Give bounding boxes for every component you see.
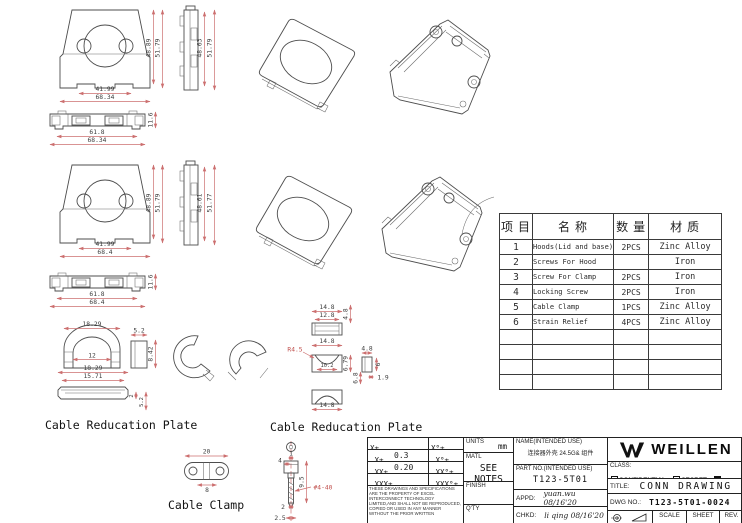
dwg-no-cell: DWG NO.: T123-5T01-0024 xyxy=(608,494,742,511)
weillen-logo-icon xyxy=(618,441,646,459)
dim-text: 51.79 xyxy=(207,38,214,57)
dim-text: 8.42 xyxy=(148,346,155,361)
dim-text: 68.4 xyxy=(97,249,112,256)
qty-label: Q'TY xyxy=(464,505,513,512)
name-label: NAME(INTENDED USE) xyxy=(514,438,607,445)
parts-table: 项 目 名 称 数 量 材 质 1 Hoods(Lid and base) 2P… xyxy=(499,213,722,390)
cell-material: Iron xyxy=(649,285,722,300)
dim-text: 14.8 xyxy=(319,402,334,409)
cell-material: Zinc Alloy xyxy=(649,315,722,330)
rev-cell: REV. xyxy=(720,511,742,523)
dim-text: 11.6 xyxy=(148,112,155,127)
cell-material: Iron xyxy=(649,270,722,285)
appd-signature: yuan.wu 08/16'20 xyxy=(544,490,607,507)
tolerance-angle-cell: .XX°± xyxy=(429,462,464,474)
cell-material: Zinc Alloy xyxy=(649,240,722,255)
cell-item: 1 xyxy=(500,240,533,255)
clamp-views xyxy=(185,463,229,480)
dim-text: 61.8 xyxy=(89,291,104,298)
cell-name: Screws For Hood xyxy=(533,255,614,270)
dim-text: 18.29 xyxy=(83,321,102,328)
dim-text: 1.9 xyxy=(377,375,389,382)
dim-text: 41.99 xyxy=(96,241,115,248)
scale-cell: SCALE xyxy=(653,511,687,523)
disclaimer-cell: THESE DRAWINGS AND SPECIFICATIONS ARE TH… xyxy=(368,486,464,523)
cell-name: Hoods(Lid and base) xyxy=(533,240,614,255)
tolerance-cell: .X± 0.3 xyxy=(368,450,429,462)
cell-qty: 2PCS xyxy=(614,285,649,300)
chkd-cell: CHKD: li qing 08/16'20 xyxy=(514,507,608,523)
units-cell: UNITS mm xyxy=(464,438,514,453)
dim-text: 68.4 xyxy=(89,299,104,306)
cell-item: 3 xyxy=(500,270,533,285)
hood-a-views xyxy=(50,6,490,129)
table-row: 4 Locking Screw 2PCS Iron xyxy=(500,285,722,300)
plate-a-caption: Cable Reducation Plate xyxy=(45,418,197,432)
qty-cell: Q'TY xyxy=(464,505,514,523)
tolerance-angle-cell: .XXX°± xyxy=(429,474,464,486)
table-row-empty xyxy=(500,375,722,390)
dim-text: 48.61 xyxy=(197,193,204,212)
dim-text: 4 xyxy=(278,458,282,465)
tolerance-angle-cell: .X°± xyxy=(429,450,464,462)
name-value: 连接器外壳 24.5G& 组件 xyxy=(514,448,607,457)
plate-a-views xyxy=(58,325,268,399)
dim-text: 5.2 xyxy=(139,397,145,407)
col-header-material: 材 质 xyxy=(649,214,722,240)
dim-text: 41.99 xyxy=(96,86,115,93)
dim-text: R4.5 xyxy=(287,347,302,354)
plate-b-caption: Cable Reducation Plate xyxy=(270,420,422,434)
dim-text: 11.6 xyxy=(148,274,155,289)
disclaimer-text: THESE DRAWINGS AND SPECIFICATIONS ARE TH… xyxy=(368,486,463,517)
dim-text: 9.5 xyxy=(299,476,306,488)
matl-cell: MATL SEE NOTES xyxy=(464,453,514,482)
table-row: 3 Screw For Clamp 2PCS Iron xyxy=(500,270,722,285)
appd-cell: APPD: yuan.wu 08/16'20 xyxy=(514,490,608,507)
cell-qty xyxy=(614,255,649,270)
dim-text: 10.2 xyxy=(321,363,334,369)
hood-b-views xyxy=(50,161,482,291)
title-cell: TITLE: CONN DRAWING xyxy=(608,479,742,494)
table-row-empty xyxy=(500,330,722,345)
dim-text: 8 xyxy=(205,487,209,494)
clamp-caption: Cable Clamp xyxy=(168,498,244,512)
dim-text: 18.29 xyxy=(84,365,103,372)
projection-symbol-icon xyxy=(608,511,652,523)
dim-text: 1 xyxy=(289,451,293,458)
scale-label: SCALE xyxy=(653,511,686,519)
dim-text: 4.8 xyxy=(361,346,373,353)
brand-name: WEILLEN xyxy=(651,441,733,458)
tolerance-cell: .XXX± xyxy=(368,474,429,486)
tolerance-angle-cell: X°± xyxy=(429,438,464,450)
name-cell: NAME(INTENDED USE) 连接器外壳 24.5G& 组件 xyxy=(514,438,608,465)
cell-item: 6 xyxy=(500,315,533,330)
dim-text: 4.8 xyxy=(343,308,350,320)
dim-text: 48.63 xyxy=(197,38,204,57)
finish-cell: FINISH xyxy=(464,482,514,505)
table-row: 5 Cable Clamp 1PCS Zinc Alloy xyxy=(500,300,722,315)
cell-name: Cable Clamp xyxy=(533,300,614,315)
cell-name: Strain Relief xyxy=(533,315,614,330)
tolerance-cell: X± xyxy=(368,438,429,450)
title-block: X± .X± 0.3 .XX± 0.20 .XXX± X°± .X°± .XX°… xyxy=(367,437,742,523)
tolerance-value: 0.3 xyxy=(394,451,408,460)
dim-text: 51.79 xyxy=(155,38,162,57)
cell-material: Zinc Alloy xyxy=(649,300,722,315)
dim-text: 12.8 xyxy=(319,312,334,319)
cell-qty: 4PCS xyxy=(614,315,649,330)
projection-cell xyxy=(608,511,653,523)
brand-cell: WEILLEN xyxy=(608,438,742,462)
dim-text: 6 xyxy=(375,362,382,366)
cell-item: 2 xyxy=(500,255,533,270)
cell-qty: 2PCS xyxy=(614,270,649,285)
dim-text: 61.8 xyxy=(89,129,104,136)
dim-text: 2.5 xyxy=(274,515,286,522)
cell-qty: 2PCS xyxy=(614,240,649,255)
drawing-title: CONN DRAWING xyxy=(640,481,733,492)
dim-text: 51.77 xyxy=(207,193,214,212)
dim-text: 68.34 xyxy=(88,137,107,144)
dim-text: 2 xyxy=(129,394,135,397)
dim-text: 48.89 xyxy=(146,193,153,212)
clamp-dims: 20 8 xyxy=(185,449,228,495)
table-header-row: 项 目 名 称 数 量 材 质 xyxy=(500,214,722,240)
matl-label: MATL xyxy=(464,453,513,460)
dim-text: 14.8 xyxy=(319,338,334,345)
balloon-leader-arc xyxy=(462,197,494,234)
sheet-cell: SHEET xyxy=(687,511,720,523)
dim-text: 12 xyxy=(88,353,96,360)
dim-text: 5.2 xyxy=(133,328,145,335)
table-row: 1 Hoods(Lid and base) 2PCS Zinc Alloy xyxy=(500,240,722,255)
dim-text: 68.34 xyxy=(96,94,115,101)
col-header-name: 名 称 xyxy=(533,214,614,240)
dwg-no-value: T123-5T01-0024 xyxy=(649,498,730,507)
dim-text: 15.71 xyxy=(84,373,103,380)
class-label: CLASS: xyxy=(608,462,742,469)
dim-text: 20 xyxy=(203,449,211,456)
class-cell: CLASS: CONFIDENTIAL SECRET GENERAL xyxy=(608,462,742,479)
title-label: TITLE: xyxy=(608,483,630,490)
dim-text: 6.79 xyxy=(343,356,350,371)
table-row: 2 Screws For Hood Iron xyxy=(500,255,722,270)
table-row-empty xyxy=(500,360,722,375)
col-header-item: 项 目 xyxy=(500,214,533,240)
dim-text: 51.79 xyxy=(155,193,162,212)
table-row-empty xyxy=(500,345,722,360)
finish-label: FINISH xyxy=(464,482,513,489)
cell-name: Screw For Clamp xyxy=(533,270,614,285)
cell-name: Locking Screw xyxy=(533,285,614,300)
part-no-label: PART NO.(INTENDED USE) xyxy=(514,465,607,472)
dim-text: 2 xyxy=(281,504,285,511)
table-row: 6 Strain Relief 4PCS Zinc Alloy xyxy=(500,315,722,330)
drawing-sheet: 41.99 68.34 48.89 51.79 48.63 51.79 61.8… xyxy=(0,0,742,523)
dwg-no-label: DWG NO.: xyxy=(608,499,641,506)
rev-label: REV. xyxy=(720,511,742,519)
dim-text: 6.8 xyxy=(353,372,360,384)
chkd-signature: li qing 08/16'20 xyxy=(544,511,604,520)
dim-text: 48.89 xyxy=(146,38,153,57)
appd-label: APPD: xyxy=(514,495,536,502)
tolerance-value: 0.20 xyxy=(394,463,413,472)
tolerance-cell: .XX± 0.20 xyxy=(368,462,429,474)
units-value: mm xyxy=(498,442,507,451)
dim-text: 14.8 xyxy=(319,304,334,311)
sheet-label: SHEET xyxy=(687,511,719,519)
dim-text: #4-40 xyxy=(314,485,333,492)
chkd-label: CHKD: xyxy=(514,512,536,519)
part-no-cell: PART NO.(INTENDED USE) T123-5T01 xyxy=(514,465,608,490)
part-no-value: T123-5T01 xyxy=(514,475,607,485)
cell-item: 4 xyxy=(500,285,533,300)
cell-qty: 1PCS xyxy=(614,300,649,315)
matl-value: SEE NOTES xyxy=(464,463,513,482)
screw-dims: 1 4 9.5 #4-40 2 2.5 xyxy=(274,451,332,523)
cell-item: 5 xyxy=(500,300,533,315)
col-header-qty: 数 量 xyxy=(614,214,649,240)
cell-material: Iron xyxy=(649,255,722,270)
